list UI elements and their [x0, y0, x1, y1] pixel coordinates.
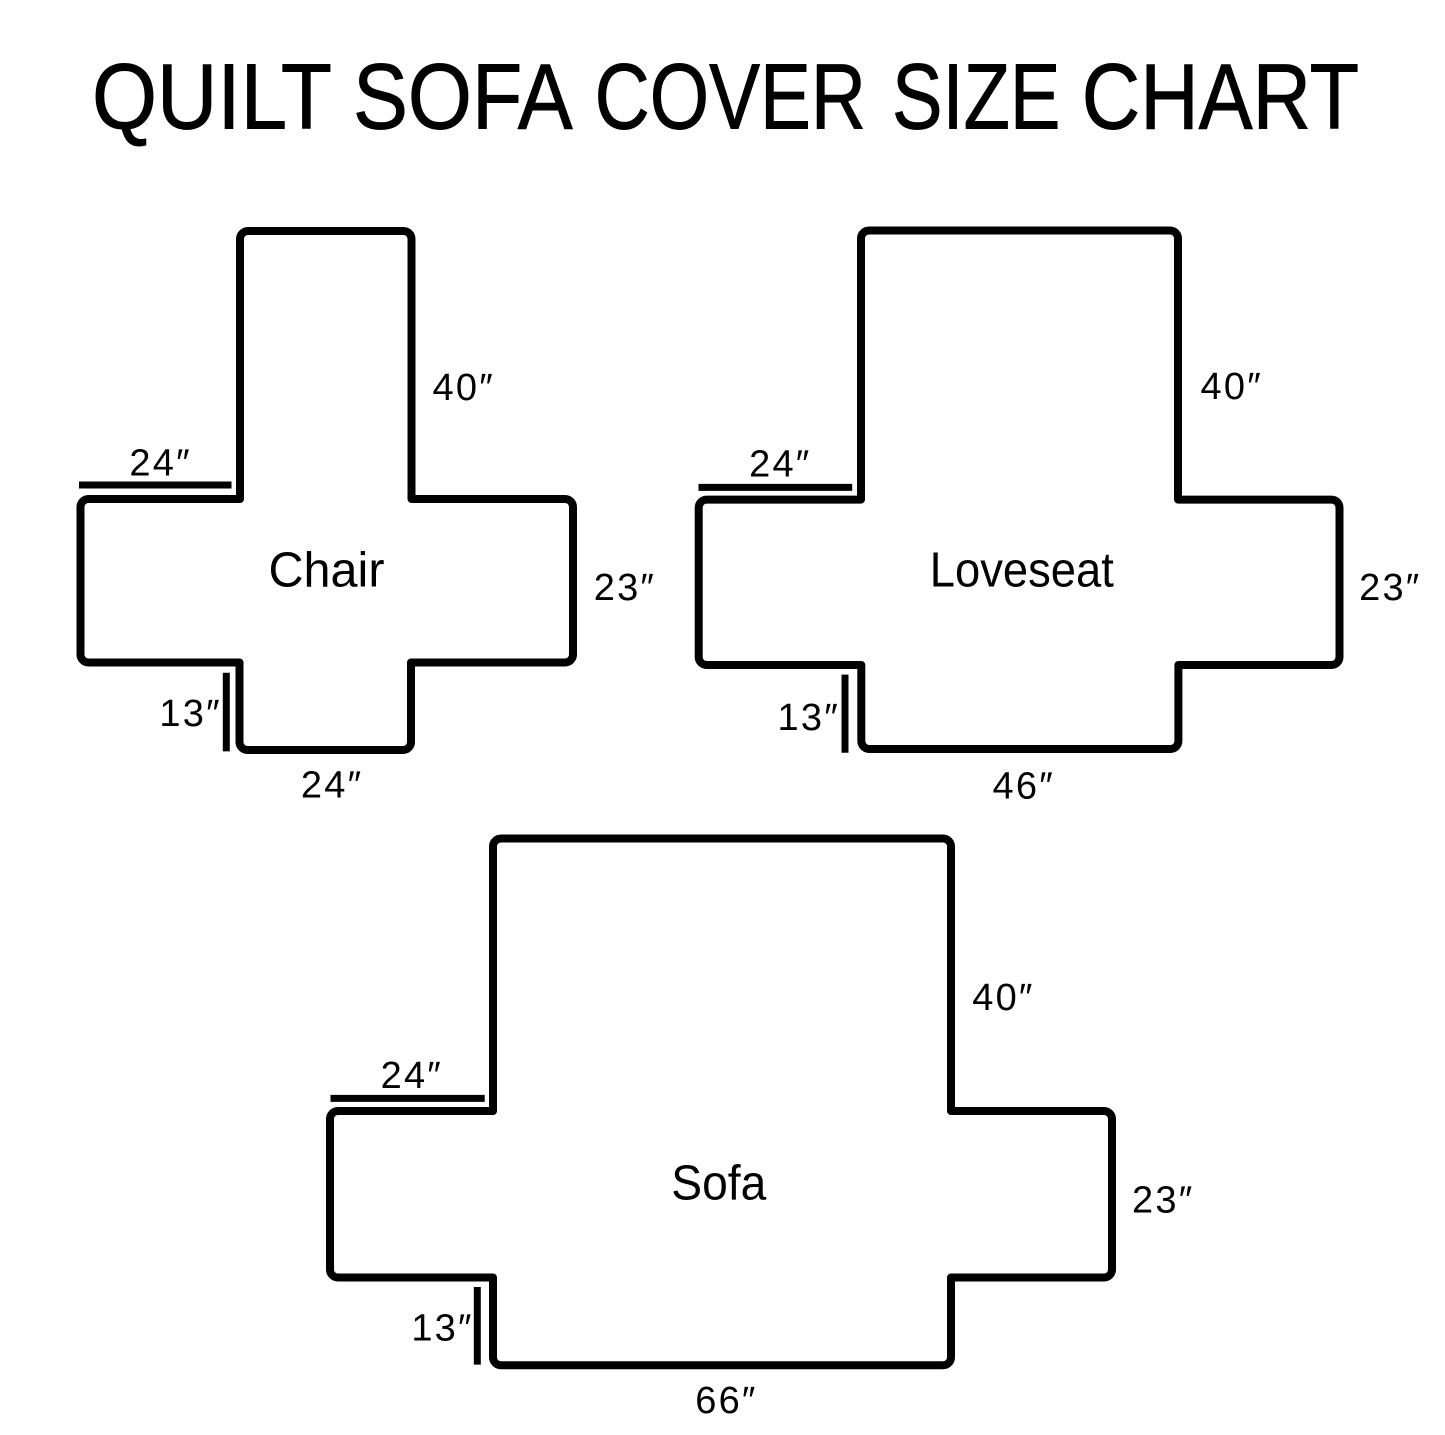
- svg-text:CHART: CHART: [1082, 45, 1359, 149]
- svg-text:Sofa: Sofa: [671, 1155, 766, 1210]
- svg-text:46″: 46″: [993, 766, 1055, 808]
- svg-text:24″: 24″: [301, 765, 363, 807]
- svg-text:SIZE: SIZE: [892, 45, 1060, 149]
- svg-text:24″: 24″: [749, 443, 811, 485]
- svg-text:24″: 24″: [381, 1055, 443, 1097]
- svg-text:40″: 40″: [972, 977, 1034, 1019]
- svg-text:23″: 23″: [1132, 1180, 1194, 1222]
- svg-text:SOFA: SOFA: [353, 45, 573, 149]
- svg-text:66″: 66″: [695, 1380, 757, 1422]
- svg-text:13″: 13″: [411, 1308, 473, 1350]
- svg-text:23″: 23″: [594, 567, 656, 609]
- svg-text:QUILT: QUILT: [92, 45, 332, 149]
- svg-text:Loveseat: Loveseat: [930, 543, 1114, 598]
- svg-text:40″: 40″: [1201, 366, 1263, 408]
- svg-text:40″: 40″: [433, 367, 495, 409]
- svg-text:13″: 13″: [159, 693, 221, 735]
- svg-text:COVER: COVER: [595, 45, 866, 149]
- svg-text:24″: 24″: [129, 443, 191, 485]
- svg-text:13″: 13″: [778, 697, 840, 739]
- svg-text:Chair: Chair: [269, 543, 385, 598]
- svg-text:23″: 23″: [1359, 567, 1421, 609]
